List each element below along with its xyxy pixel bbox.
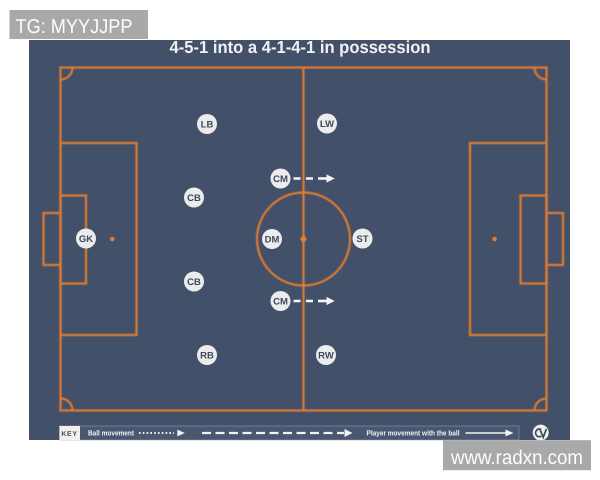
svg-text:www.radxn.com: www.radxn.com — [450, 447, 583, 469]
svg-text:4-5-1 into a 4-1-4-1 in posses: 4-5-1 into a 4-1-4-1 in possession — [170, 37, 431, 57]
svg-text:ST: ST — [356, 234, 368, 245]
svg-text:LW: LW — [320, 119, 334, 130]
svg-text:CB: CB — [187, 277, 201, 288]
svg-text:CM: CM — [273, 174, 288, 185]
svg-text:LB: LB — [201, 120, 214, 131]
svg-text:CM: CM — [273, 297, 288, 308]
svg-text:TG: MYYJJPP: TG: MYYJJPP — [16, 16, 133, 38]
svg-text:RW: RW — [318, 351, 334, 362]
svg-text:KEY: KEY — [61, 431, 77, 438]
svg-text:DM: DM — [265, 235, 280, 246]
svg-text:Player movement with the ball: Player movement with the ball — [367, 429, 460, 438]
svg-text:CB: CB — [187, 193, 201, 204]
svg-text:GK: GK — [79, 234, 93, 245]
svg-text:RB: RB — [200, 351, 214, 362]
svg-text:Ball movement: Ball movement — [88, 429, 134, 438]
